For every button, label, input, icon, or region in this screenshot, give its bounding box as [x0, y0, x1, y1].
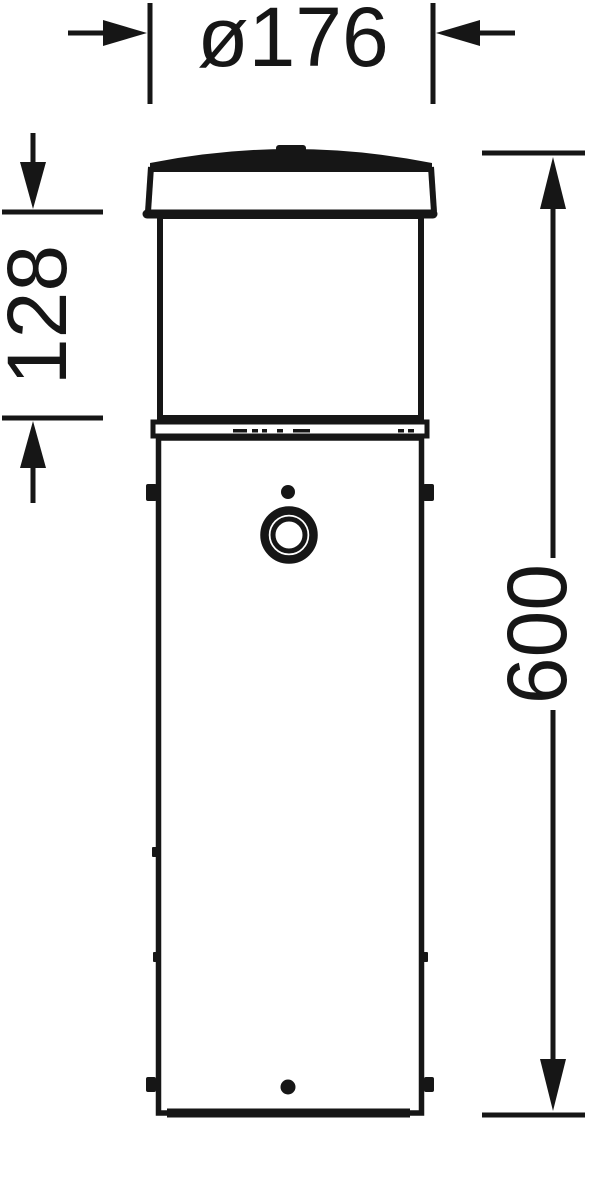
side-tab-upper-left — [146, 484, 157, 501]
dim-arrow-down-head — [20, 162, 46, 209]
side-joint-mark-left — [152, 847, 157, 857]
dim-arrow-right-head — [436, 20, 480, 46]
side-tab-bottom-right — [424, 1077, 434, 1092]
cap-right-side — [431, 167, 434, 212]
overall-height-label: 600 — [490, 564, 584, 704]
diameter-dimension: ø176 — [68, 0, 515, 104]
bollard-outline — [146, 145, 434, 1113]
head-height-dimension: 128 — [0, 133, 103, 503]
body-housing — [159, 438, 422, 1113]
base-screw-dot — [281, 1080, 296, 1095]
dim-arrow-up-head — [20, 421, 46, 468]
side-joint-mark-lower-right — [423, 952, 428, 962]
side-tab-bottom-left — [146, 1077, 156, 1092]
diffuser-glass — [160, 216, 421, 418]
dim-arrow-down-head — [540, 1059, 566, 1111]
bollard-dimension-drawing: ø176 128 600 — [0, 0, 600, 1200]
drawing-canvas: ø176 128 600 — [0, 0, 600, 1200]
side-joint-mark-lower-left — [153, 952, 158, 962]
cap-left-side — [148, 167, 151, 212]
side-tab-upper-right — [423, 484, 434, 501]
indicator-dot — [281, 485, 295, 499]
trim-band — [153, 422, 427, 436]
cap-dome — [150, 149, 432, 172]
diameter-label: ø176 — [197, 0, 388, 84]
dim-arrow-up-head — [540, 157, 566, 209]
head-height-label: 128 — [0, 245, 84, 385]
overall-height-dimension: 600 — [482, 153, 585, 1115]
dim-arrow-left-head — [103, 20, 147, 46]
